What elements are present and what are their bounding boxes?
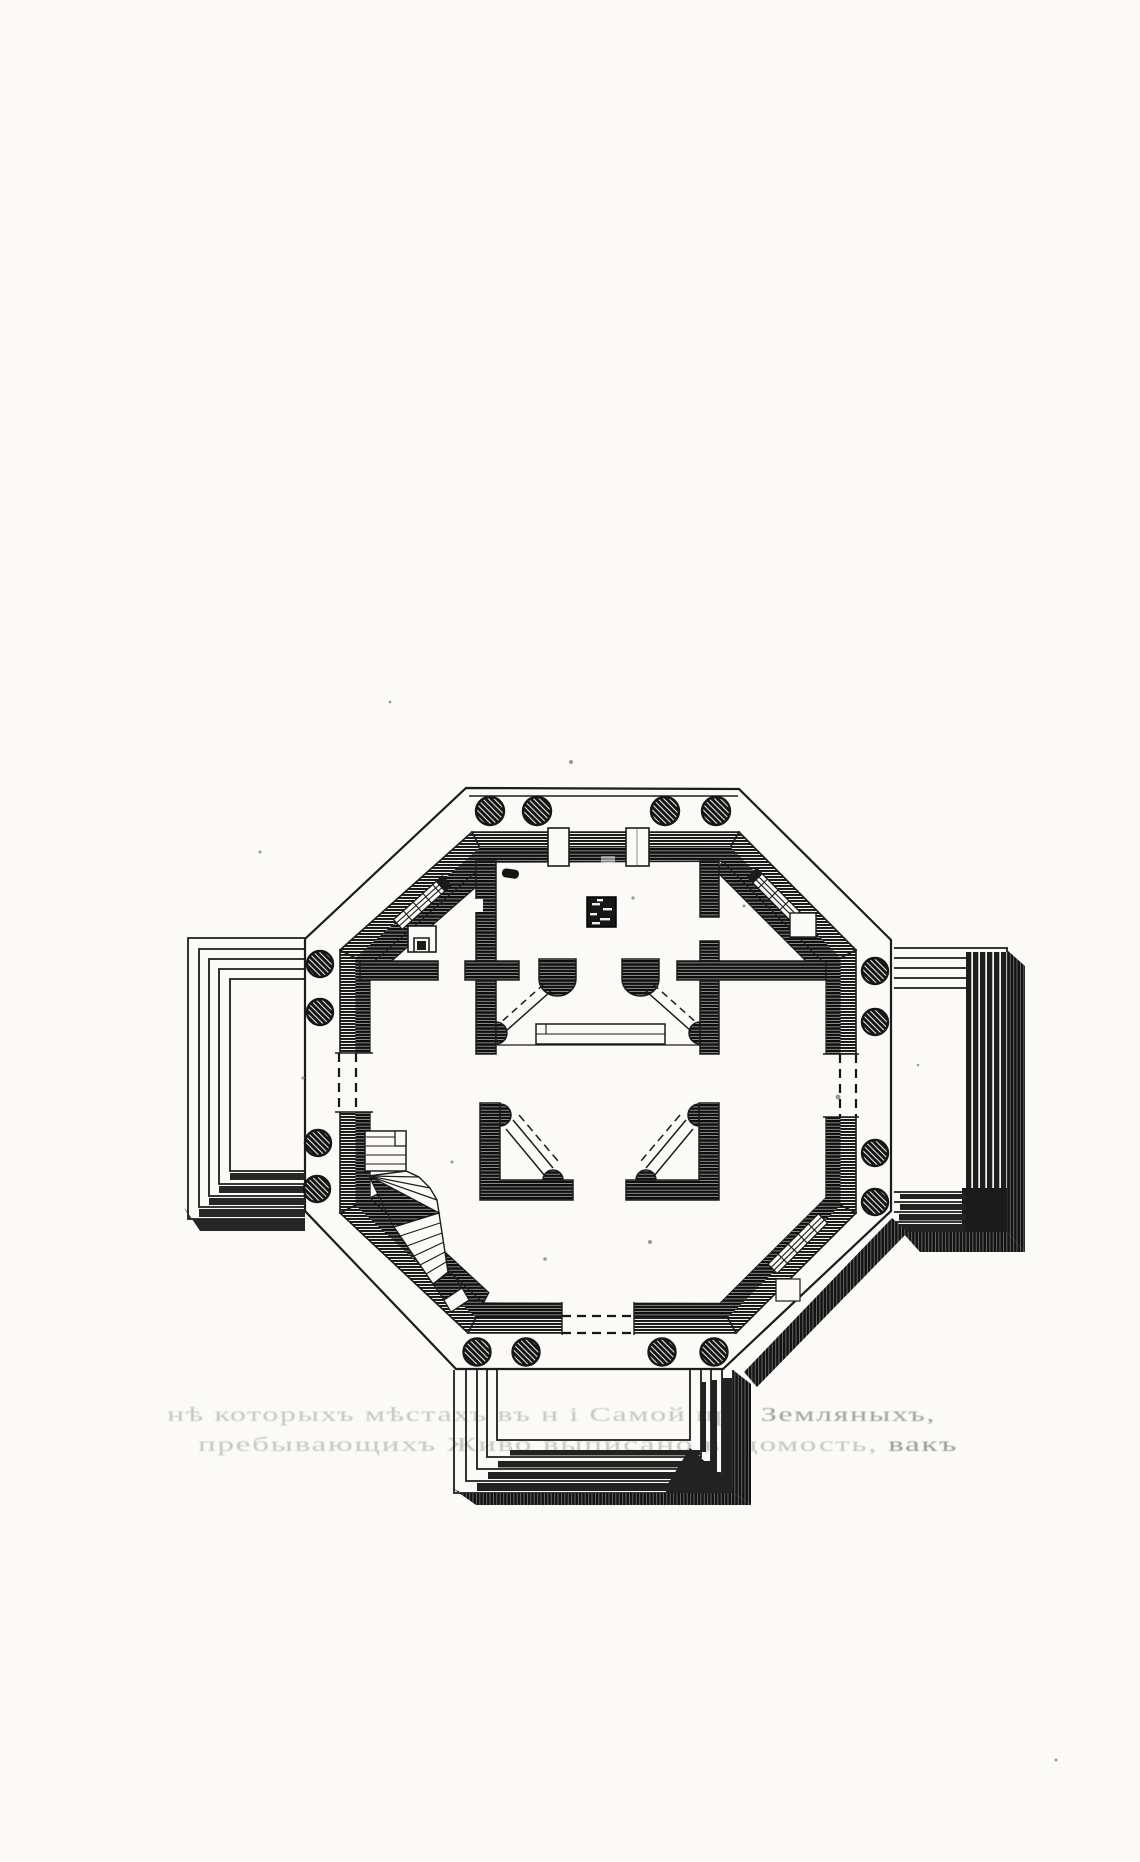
svg-text:нѣ которыхъ мѣстахъ въ н і Сам: нѣ которыхъ мѣстахъ въ н і Самой при Зем… <box>167 1404 936 1426</box>
